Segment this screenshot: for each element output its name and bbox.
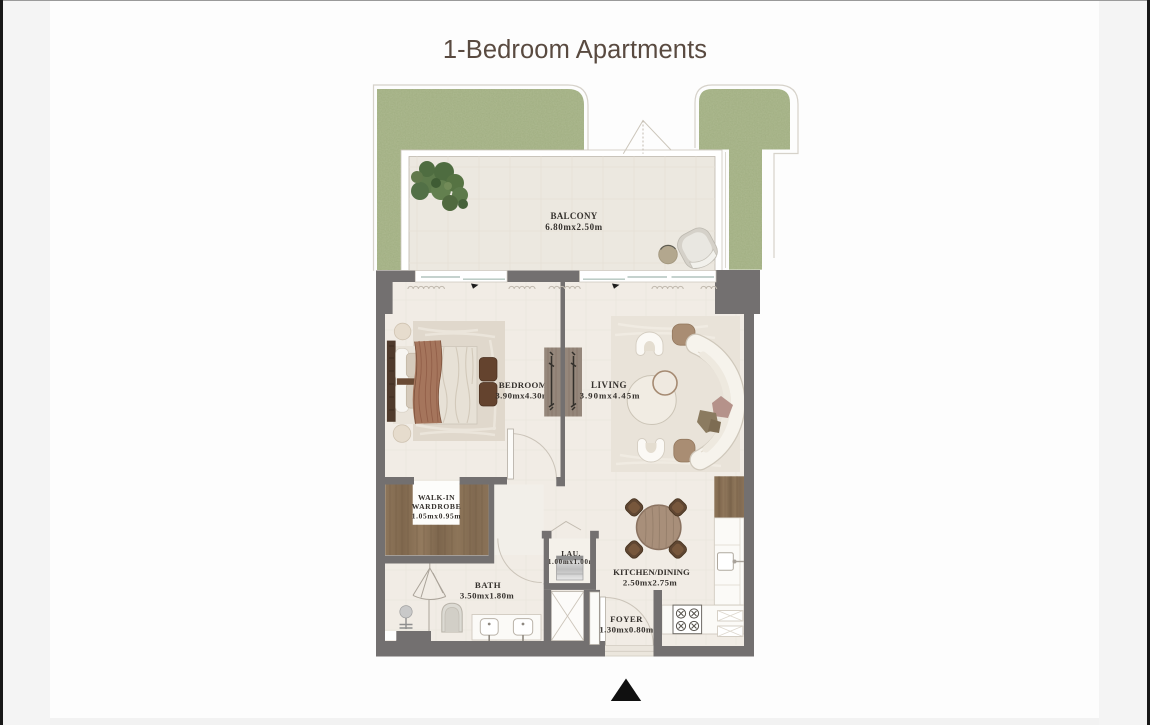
- svg-text:1.05mx0.95m: 1.05mx0.95m: [412, 512, 462, 521]
- svg-text:FOYER: FOYER: [610, 614, 643, 624]
- svg-text:1.00mx1.00m: 1.00mx1.00m: [548, 558, 595, 566]
- svg-text:3.90mx4.45m: 3.90mx4.45m: [580, 391, 641, 401]
- svg-text:3.50mx1.80m: 3.50mx1.80m: [460, 591, 515, 601]
- svg-text:1.30mx0.80m: 1.30mx0.80m: [599, 625, 654, 635]
- svg-text:BEDROOM: BEDROOM: [499, 380, 548, 390]
- svg-text:LAU.: LAU.: [561, 549, 581, 558]
- svg-text:6.80mx2.50m: 6.80mx2.50m: [545, 222, 603, 232]
- svg-text:LIVING: LIVING: [591, 380, 627, 390]
- svg-text:WALK-IN: WALK-IN: [418, 493, 455, 502]
- svg-text:WARDROBE: WARDROBE: [412, 502, 462, 511]
- svg-text:KITCHEN/DINING: KITCHEN/DINING: [613, 567, 690, 577]
- svg-text:3.90mx4.30m: 3.90mx4.30m: [495, 391, 550, 401]
- svg-text:2.50mx2.75m: 2.50mx2.75m: [623, 578, 678, 588]
- svg-text:BATH: BATH: [475, 580, 501, 590]
- svg-text:BALCONY: BALCONY: [550, 211, 597, 221]
